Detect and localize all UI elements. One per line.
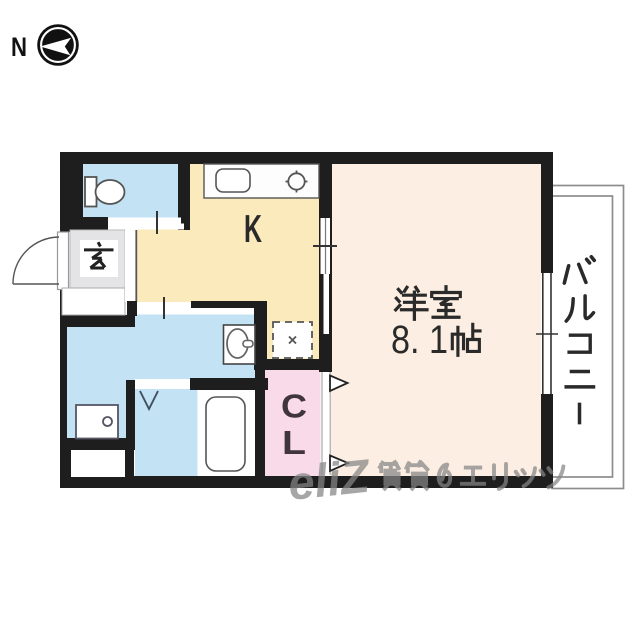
svg-text:8. 1: 8. 1	[391, 318, 448, 362]
svg-text:eliZ: eliZ	[286, 449, 374, 510]
svg-text:K: K	[244, 208, 262, 251]
svg-text:N: N	[11, 32, 27, 62]
svg-text:C: C	[281, 388, 307, 425]
